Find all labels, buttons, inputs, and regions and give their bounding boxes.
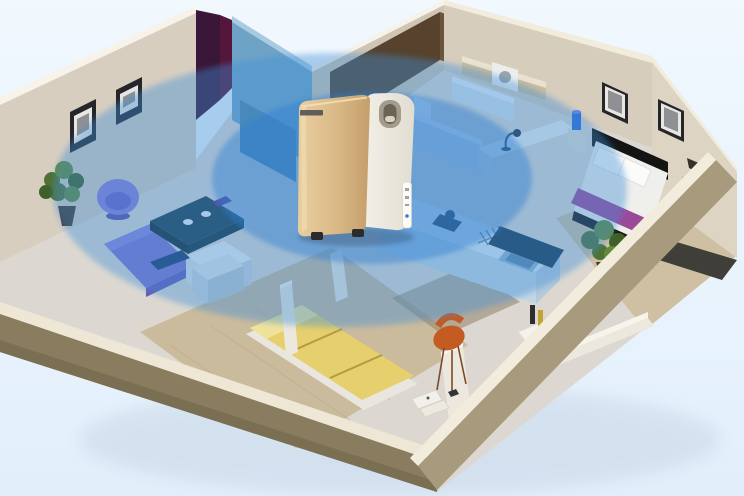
plant-foliage: [39, 185, 53, 199]
device-handle-glint: [385, 116, 395, 122]
scene-canvas: [0, 0, 744, 496]
power-indicator: [405, 214, 409, 218]
coverage-illustration: [0, 0, 744, 496]
brand-logo: [300, 110, 323, 116]
device-foot: [311, 232, 323, 240]
bottle-dark: [530, 305, 535, 324]
book-detail: [427, 397, 430, 400]
control-indicator: [405, 204, 409, 206]
air-purifier: [298, 93, 414, 246]
control-indicator: [405, 196, 409, 199]
device-edge-sheen: [301, 103, 307, 232]
device-front-panel: [298, 95, 370, 237]
device-foot: [352, 229, 364, 237]
control-indicator: [405, 188, 409, 191]
device-control-strip: [403, 182, 412, 228]
